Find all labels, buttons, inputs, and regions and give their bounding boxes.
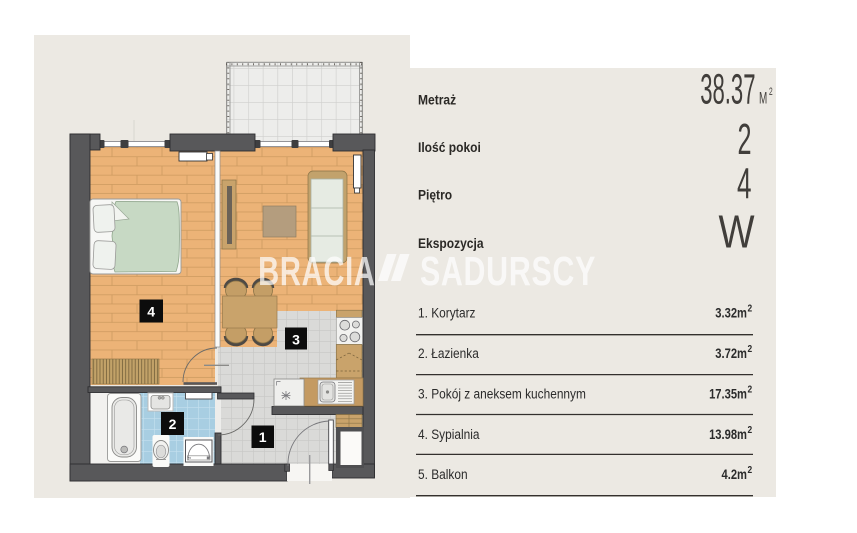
svg-text:W: W	[718, 206, 754, 257]
svg-text:2: 2	[737, 115, 751, 164]
svg-text:2: 2	[748, 303, 753, 315]
svg-text:2: 2	[748, 343, 753, 355]
svg-text:2: 2	[769, 85, 773, 97]
svg-text:2. Łazienka: 2. Łazienka	[418, 345, 480, 361]
svg-text:13.98m: 13.98m	[709, 427, 747, 442]
svg-text:M: M	[759, 89, 767, 107]
svg-text:Ekspozycja: Ekspozycja	[418, 235, 484, 251]
svg-text:P: P	[188, 456, 191, 461]
svg-text:Metraż: Metraż	[418, 91, 457, 107]
svg-text:5. Balkon: 5. Balkon	[418, 466, 468, 482]
svg-text:2: 2	[748, 383, 753, 395]
svg-text:2: 2	[169, 416, 177, 432]
svg-text:4: 4	[737, 160, 752, 209]
svg-text:Piętro: Piętro	[418, 186, 452, 202]
svg-text:1: 1	[259, 429, 267, 445]
svg-text:SADURSCY: SADURSCY	[420, 247, 596, 294]
svg-text:4. Sypialnia: 4. Sypialnia	[418, 426, 480, 442]
svg-text:3.32m: 3.32m	[715, 305, 747, 320]
svg-text:2: 2	[748, 464, 753, 476]
svg-text:4.2m: 4.2m	[722, 467, 747, 482]
svg-text:Ilość pokoi: Ilość pokoi	[418, 139, 481, 155]
svg-text:38.37: 38.37	[700, 66, 755, 114]
svg-text:3. Pokój z aneksem kuchennym: 3. Pokój z aneksem kuchennym	[418, 385, 586, 401]
svg-text:4: 4	[147, 304, 155, 320]
svg-text:2: 2	[748, 424, 753, 436]
svg-text:1. Korytarz: 1. Korytarz	[418, 305, 476, 321]
svg-text:3.72m: 3.72m	[715, 346, 747, 361]
svg-text:3: 3	[292, 332, 300, 348]
svg-text:BRACIA: BRACIA	[258, 248, 375, 294]
svg-text:17.35m: 17.35m	[709, 386, 747, 401]
